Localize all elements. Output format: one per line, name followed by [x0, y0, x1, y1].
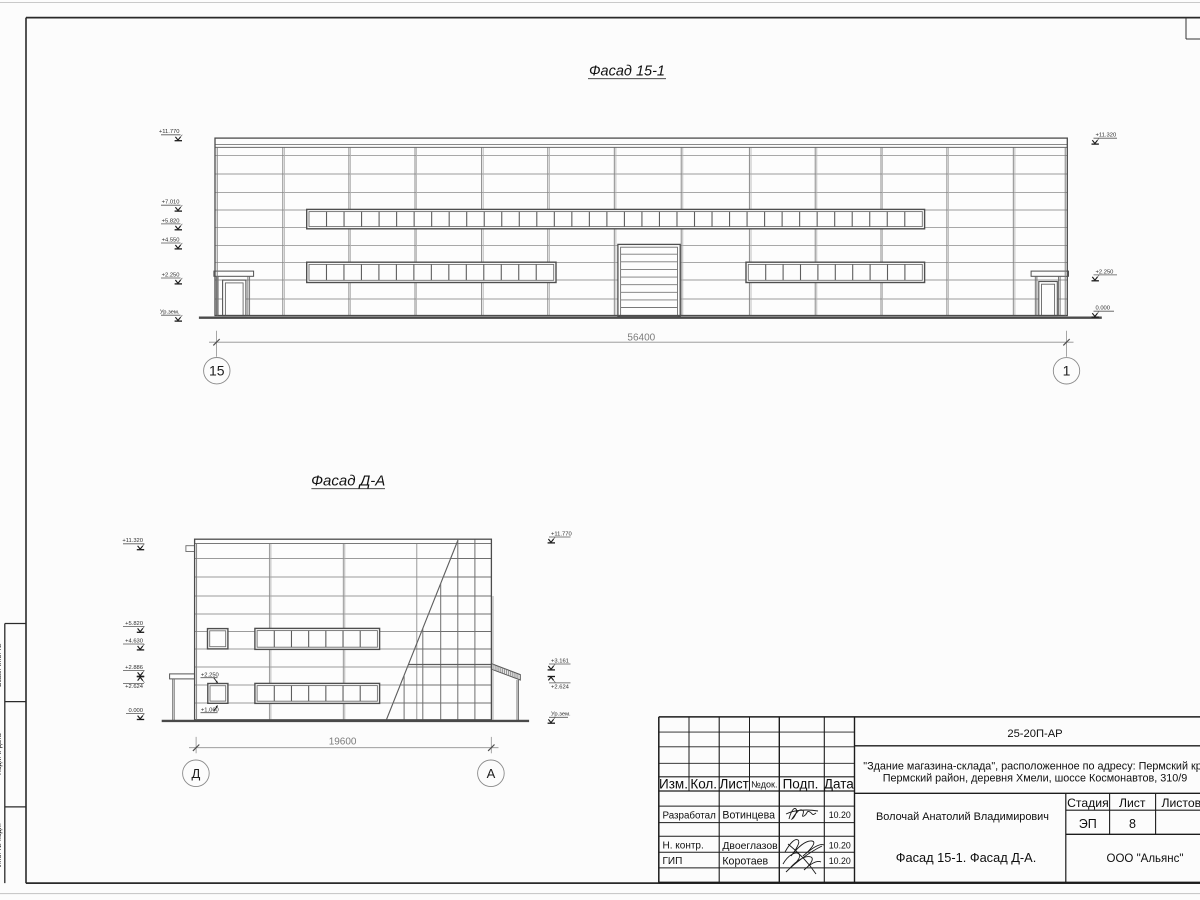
svg-text:+11.320: +11.320 [1096, 133, 1117, 139]
svg-text:56400: 56400 [627, 332, 655, 343]
svg-text:1: 1 [1063, 363, 1071, 379]
svg-text:ООО "Альянс": ООО "Альянс" [1107, 853, 1184, 865]
svg-text:Листов: Листов [1161, 796, 1200, 810]
svg-text:Двоеглазов: Двоеглазов [722, 841, 778, 852]
svg-text:А: А [487, 766, 496, 781]
svg-text:Вотинцева: Вотинцева [722, 810, 775, 822]
svg-text:+5.820: +5.820 [162, 218, 180, 224]
svg-text:ГИП: ГИП [663, 856, 683, 867]
svg-text:Взам. инв. №: Взам. инв. № [0, 643, 3, 687]
svg-text:Инв. № подл.: Инв. № подл. [0, 823, 3, 867]
svg-text:10.20: 10.20 [829, 810, 851, 820]
svg-text:Пермский район, деревня Хмели,: Пермский район, деревня Хмели, шоссе Кос… [883, 773, 1187, 785]
svg-text:Фасад 15-1: Фасад 15-1 [589, 64, 665, 80]
svg-text:Фасад 15-1. Фасад Д-А.: Фасад 15-1. Фасад Д-А. [896, 850, 1037, 865]
svg-text:Д: Д [191, 766, 200, 781]
svg-text:№док.: №док. [751, 780, 777, 790]
svg-text:19600: 19600 [329, 737, 357, 748]
svg-text:10.20: 10.20 [829, 841, 851, 851]
svg-text:+2.886: +2.886 [125, 665, 143, 671]
svg-text:ЭП: ЭП [1079, 817, 1097, 831]
svg-text:Волочай Анатолий Владимирович: Волочай Анатолий Владимирович [876, 811, 1049, 823]
svg-text:+2.624: +2.624 [125, 684, 144, 690]
svg-text:+11.770: +11.770 [159, 129, 180, 135]
svg-text:Стадия: Стадия [1067, 796, 1109, 810]
svg-text:Коротаев: Коротаев [722, 856, 768, 868]
svg-text:Дата: Дата [824, 776, 854, 791]
svg-text:+2.250: +2.250 [162, 272, 180, 278]
svg-text:+11.320: +11.320 [122, 538, 143, 544]
svg-text:Кол.: Кол. [690, 776, 717, 791]
svg-text:0.000: 0.000 [1096, 306, 1111, 312]
svg-text:Ур.зем.: Ур.зем. [551, 712, 571, 718]
svg-text:+5.820: +5.820 [125, 621, 143, 627]
svg-text:Лист: Лист [1119, 796, 1146, 810]
svg-text:25-20П-АР: 25-20П-АР [1007, 728, 1062, 740]
svg-text:Подп.: Подп. [783, 776, 819, 791]
svg-text:"Здание магазина-склада", расп: "Здание магазина-склада", расположенное … [863, 760, 1200, 772]
svg-text:15: 15 [209, 363, 225, 379]
svg-text:+4.630: +4.630 [125, 638, 143, 644]
svg-text:+7.010: +7.010 [162, 200, 180, 206]
svg-text:Ур.зем.: Ур.зем. [160, 310, 180, 316]
svg-text:Лист: Лист [720, 776, 749, 791]
svg-text:+11.770: +11.770 [551, 531, 572, 537]
svg-text:Фасад Д-А: Фасад Д-А [311, 473, 385, 490]
svg-text:Н. контр.: Н. контр. [663, 841, 704, 852]
svg-text:10.20: 10.20 [829, 856, 851, 866]
svg-text:+2.624: +2.624 [551, 685, 570, 691]
svg-text:Подп. и дата: Подп. и дата [0, 733, 3, 775]
svg-text:Изм.: Изм. [659, 776, 688, 791]
svg-text:+2.250: +2.250 [1096, 269, 1114, 275]
svg-text:+4.550: +4.550 [162, 237, 180, 243]
svg-text:0.000: 0.000 [128, 708, 143, 714]
svg-text:Разработал: Разработал [663, 810, 717, 821]
svg-text:8: 8 [1129, 817, 1136, 831]
svg-text:+3.161: +3.161 [551, 658, 569, 664]
